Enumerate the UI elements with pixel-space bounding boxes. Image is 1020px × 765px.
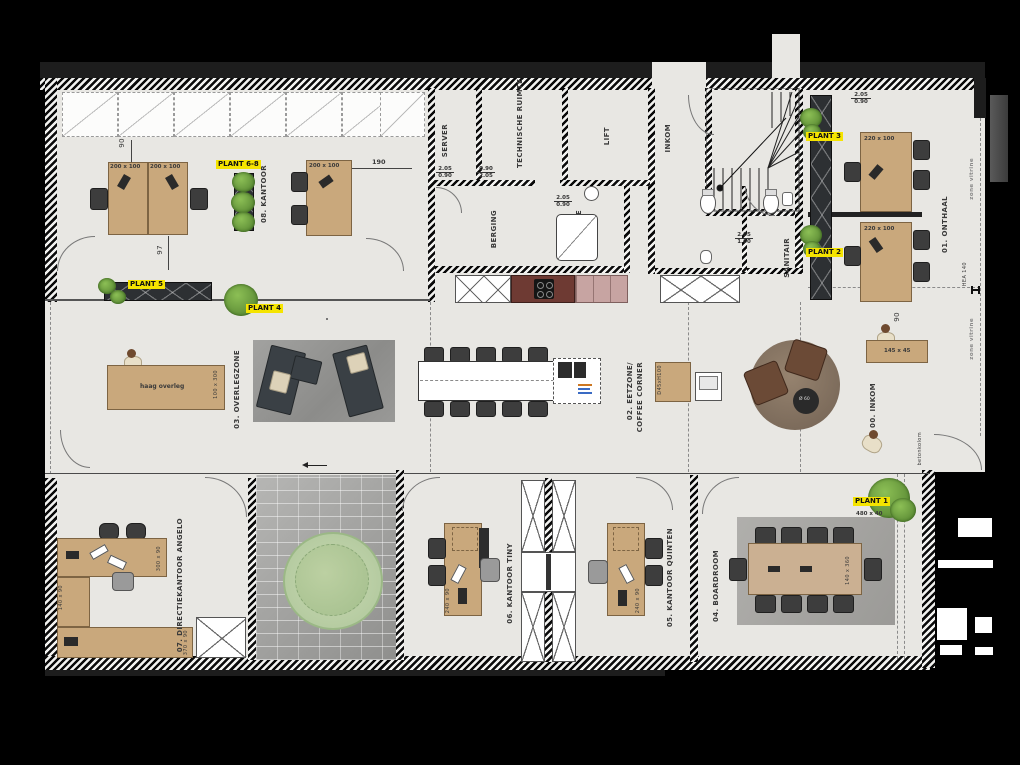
chair <box>528 401 548 417</box>
locker <box>118 92 174 137</box>
room-label-directie: 07. DIRECTIEKANTOOR ANGELO <box>176 518 184 652</box>
plant <box>232 212 255 232</box>
locker <box>380 92 425 137</box>
room-label-technische: TECHNISCHE RUIMTE <box>516 108 524 168</box>
desk-size: 300 x 90 <box>157 546 163 571</box>
floorplan-canvas: 2.05 0.90 200 x 100 200 x 100 PLANT 6-8 … <box>0 0 1020 765</box>
dim-90: 90 <box>118 138 126 148</box>
door-width: 0.90 <box>854 99 868 105</box>
exterior-wall-bottom <box>45 656 930 670</box>
stair-landing <box>772 34 800 78</box>
door-size: 0.90 2.05 <box>477 166 495 180</box>
plant-6-8-label: PLANT 6-8 <box>216 160 261 169</box>
desk <box>108 162 148 235</box>
room-label-sanitair: SANITAIR <box>783 238 791 278</box>
chair <box>913 230 930 250</box>
chair <box>913 262 930 282</box>
toilet-tank <box>702 189 714 196</box>
exterior-wall-top-shadow <box>40 62 985 78</box>
plant-2-label: PLANT 2 <box>806 248 843 257</box>
person <box>881 324 890 333</box>
wall-quinten-board <box>690 475 698 662</box>
room-label-quinten: 05. KANTOOR QUINTEN <box>666 528 674 627</box>
desk-size: 200 x 100 <box>309 163 339 169</box>
desk-size: 220 x 100 <box>864 226 894 232</box>
chair <box>291 205 308 225</box>
exterior-wall-right-lower <box>922 470 935 668</box>
shaft-panel <box>552 480 576 552</box>
chair <box>913 170 930 190</box>
outside-block <box>938 560 993 568</box>
dim-97: 97 <box>156 245 164 255</box>
desk-extension <box>452 527 478 551</box>
shower-tray <box>556 214 598 261</box>
door-width: 0.90 <box>477 166 495 173</box>
chair <box>755 595 776 613</box>
room-label-berging: BERGING <box>490 210 498 248</box>
chair <box>450 401 470 417</box>
table-centerline <box>420 380 554 382</box>
person <box>869 430 878 439</box>
room-label-overlegzone: 03. OVERLEGZONE <box>233 350 241 429</box>
desk <box>306 160 352 236</box>
chair <box>428 565 446 586</box>
plant-1-label: PLANT 1 <box>853 497 890 506</box>
hea-column-icon <box>971 286 980 294</box>
table-grommet <box>800 566 812 572</box>
haag-overleg-label: haag overleg <box>140 383 184 390</box>
plant-tree <box>890 498 916 522</box>
desk-size: 220 x 100 <box>864 136 894 142</box>
chair <box>476 401 496 417</box>
shaft-window-post <box>546 554 551 590</box>
desk-size: 140 x 90 <box>59 585 65 610</box>
door-height: 2.05 <box>436 166 454 173</box>
room-label-lift: LIFT <box>603 127 611 145</box>
outside-block <box>975 647 993 655</box>
desk-size: 240 x 90 <box>446 588 452 613</box>
cabinet-size: D45xH100 <box>658 365 664 395</box>
desk <box>860 222 912 302</box>
room-label-eetzone: 02. EETZONE/ <box>626 362 634 420</box>
shaft-panel <box>521 592 545 662</box>
wall-court-tiny <box>396 470 404 660</box>
board-table-size: 140 x 360 <box>846 556 852 585</box>
plant-3-label: PLANT 3 <box>806 132 843 141</box>
exterior-wall-left-upper <box>45 78 57 302</box>
burner <box>546 291 553 298</box>
haag-size: 100 x 300 <box>214 370 220 399</box>
chair <box>781 595 802 613</box>
dim-90: 90 <box>893 312 901 322</box>
entrance-gap <box>652 62 706 90</box>
chair <box>913 140 930 160</box>
plant <box>231 192 255 213</box>
dim-line <box>352 168 412 169</box>
office-chair <box>480 558 500 582</box>
desk <box>148 162 188 235</box>
desk-size: 200 x 100 <box>110 164 140 170</box>
wall-sanitair-bottom <box>655 268 803 274</box>
exterior-wall-top <box>40 78 985 90</box>
person <box>127 349 136 358</box>
chair <box>864 558 882 581</box>
outside-block <box>937 608 967 640</box>
chair <box>428 538 446 559</box>
menu-text <box>578 384 592 386</box>
burner <box>546 282 553 289</box>
sink <box>782 192 793 206</box>
exterior-wall-bottom-shadow <box>45 670 665 676</box>
menu-text <box>578 392 592 394</box>
menu-text <box>578 388 590 390</box>
plant <box>232 172 255 192</box>
kitchen-cabinet <box>455 275 511 303</box>
vanity-cabinet <box>660 275 740 303</box>
chair <box>424 401 444 417</box>
room-label-server: SERVER <box>441 124 449 157</box>
betonkolom-label: betonkolom <box>918 432 924 466</box>
shaft-panel <box>521 480 545 552</box>
plant-4-label: PLANT 4 <box>246 304 283 313</box>
office-chair <box>588 560 608 584</box>
console-size: 145 x 45 <box>884 348 911 354</box>
desk-item <box>618 590 627 606</box>
chair <box>90 188 108 210</box>
door-size: 2.05 0.90 <box>851 92 871 106</box>
desk-extension <box>613 527 639 551</box>
courtyard-bush <box>295 544 369 616</box>
door-height: 2.05 <box>479 173 493 179</box>
door-height: 2.05 <box>735 232 753 239</box>
desk <box>860 132 912 212</box>
dim-line <box>131 140 132 162</box>
plantbed-size: 480 x 40 <box>856 511 883 517</box>
door-width: 0.90 <box>556 202 570 208</box>
outside-block <box>975 617 992 633</box>
chair <box>807 595 828 613</box>
locker <box>286 92 342 137</box>
table-grommet <box>768 566 780 572</box>
lower-row-wall <box>45 473 930 475</box>
burner <box>537 282 544 289</box>
door-size: 2.05 0.90 <box>554 195 572 209</box>
exterior-wall-right-top <box>974 78 986 118</box>
chair <box>502 401 522 417</box>
printer-top <box>699 376 718 390</box>
wall-douche-right <box>624 186 630 273</box>
wall-directie-court <box>248 478 256 660</box>
door-size: 2.05 0.90 <box>436 166 454 180</box>
hea-140-label: HEA 140 <box>963 262 969 286</box>
room-label-inkom: INKOM <box>664 124 672 153</box>
room-label-onthaal: 01. ONTHAAL <box>941 196 949 253</box>
side-table-size: Ø 60 <box>799 397 810 402</box>
direction-arrow <box>305 465 327 466</box>
locker <box>62 92 118 137</box>
room-label-kantoor08: 08. KANTOOR <box>260 163 268 223</box>
door-height: 2.05 <box>554 195 572 202</box>
left-facade-line <box>50 302 52 474</box>
arrow-head-icon <box>302 462 308 468</box>
plant <box>110 290 126 304</box>
desk-size: 240 x 90 <box>636 588 642 613</box>
chair <box>844 162 861 182</box>
vitrine-note: zone vitrine <box>969 158 975 200</box>
sink <box>584 186 599 201</box>
wall-core-left <box>428 88 435 302</box>
outside-block <box>958 518 992 537</box>
office-chair <box>112 572 134 591</box>
chair <box>645 565 663 586</box>
chair <box>844 246 861 266</box>
chair <box>729 558 747 581</box>
shaft-panel <box>552 592 576 662</box>
right-vitrine-line <box>980 118 982 436</box>
locker <box>230 92 286 137</box>
locker <box>174 92 230 137</box>
wall-berging-kitchen <box>435 266 630 273</box>
chair <box>645 538 663 559</box>
wall-lift-douche <box>560 180 650 186</box>
door-width: 1.00 <box>737 239 751 245</box>
desk-item <box>66 551 79 559</box>
wall-server-berging <box>435 180 535 186</box>
toilet <box>700 193 716 214</box>
desk-size: 370 x 90 <box>184 630 190 655</box>
room-label-tiny: 06. KANTOOR TINY <box>506 543 514 624</box>
room-label-coffee: COFFEE CORNER <box>636 362 644 432</box>
room-label-boardroom: 04. BOARDROOM <box>712 550 720 622</box>
outside-block <box>940 645 962 655</box>
desk-item <box>458 588 467 604</box>
kitchen-cabinet-pink <box>575 275 628 303</box>
door-arc <box>326 318 328 320</box>
door-width: 0.90 <box>438 173 452 179</box>
urinal <box>700 250 712 264</box>
door-height: 2.05 <box>851 92 871 99</box>
desk-item <box>64 637 78 646</box>
coffee-machine <box>558 362 572 378</box>
neighbour-strip <box>990 95 1008 182</box>
door-size: 2.05 1.00 <box>735 232 753 246</box>
exterior-wall-left-lower <box>45 478 57 668</box>
vitrine-note: zone vitrine <box>969 318 975 360</box>
dim-line <box>168 236 169 270</box>
chair <box>291 172 308 192</box>
burner <box>537 291 544 298</box>
chair <box>833 595 854 613</box>
plant-5-label: PLANT 5 <box>128 280 165 289</box>
desk-size: 200 x 100 <box>150 164 180 170</box>
dim-190: 190 <box>372 158 386 166</box>
coffee-machine <box>574 362 586 378</box>
chair <box>190 188 208 210</box>
cabinet <box>196 617 246 658</box>
wall-tech-lift <box>562 88 568 185</box>
room-label-inkom00: 00. INKOM <box>869 383 877 428</box>
